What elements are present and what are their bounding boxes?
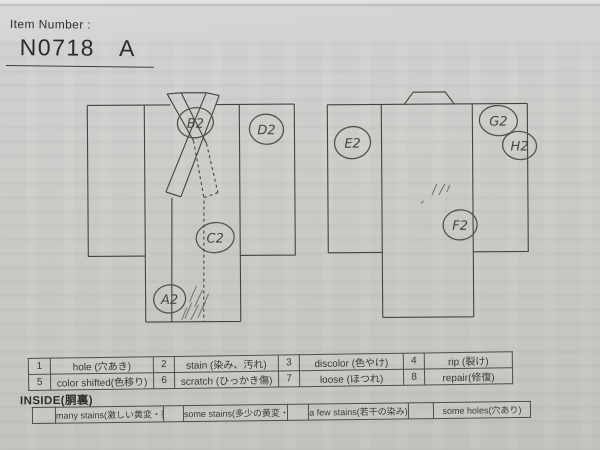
damage-label-d2: D2 (248, 112, 285, 146)
inside-check-4 (408, 403, 433, 419)
kimono-front-diagram: B2 D2 C2 A2 (87, 92, 296, 322)
inside-desc-some-holes: some holes(穴あり) (433, 401, 530, 418)
legend-desc-scratch: scratch (ひっかき傷) (174, 371, 278, 388)
inside-desc-many-stains: many stains(激しい黄変・染み) (55, 406, 163, 423)
legend-code-2: 2 (153, 356, 174, 372)
label-text: C2 (206, 232, 223, 247)
damage-legend: 1 hole (穴あき) 2 stain (染み、汚れ) 3 discolor … (28, 351, 513, 391)
legend-code-6: 6 (153, 372, 174, 388)
label-text: F2 (452, 219, 468, 234)
kimono-back-diagram: E2 G2 H2 F2 (327, 91, 539, 317)
legend-desc-discolor: discolor (色やけ) (299, 353, 403, 370)
back-collar (404, 92, 454, 104)
legend-code-8: 8 (403, 369, 424, 385)
legend-code-4: 4 (403, 353, 424, 369)
legend-code-7: 7 (278, 371, 299, 387)
inside-check-1 (32, 407, 55, 423)
label-text: H2 (510, 139, 528, 154)
legend-desc-hole: hole (穴あき) (50, 357, 153, 374)
label-text: E2 (344, 137, 361, 152)
inside-check-3 (287, 404, 308, 420)
legend-desc-repair: repair(修復) (424, 368, 512, 385)
legend-code-5: 5 (28, 374, 50, 390)
legend-desc-loose: loose (ほつれ) (299, 369, 403, 386)
label-text: B2 (187, 117, 204, 132)
damage-label-a2: A2 (151, 282, 188, 315)
inside-desc-a-few-stains: a few stains(若干の染み) (308, 403, 408, 420)
legend-desc-rip: rip (裂け) (424, 352, 512, 369)
label-text: D2 (257, 123, 275, 138)
damage-label-c2: C2 (195, 221, 236, 255)
back-stain-marks (421, 184, 450, 203)
legend-code-3: 3 (278, 355, 299, 371)
inside-desc-some-stains: some stains(多少の黄変・染み) (183, 404, 287, 421)
scanned-condition-sheet: Item Number : N0718A (0, 0, 600, 450)
damage-legend-table: 1 hole (穴あき) 2 stain (染み、汚れ) 3 discolor … (28, 351, 513, 391)
label-text: G2 (489, 115, 507, 130)
front-stain-hatching (182, 286, 209, 320)
inside-check-2 (163, 406, 183, 422)
legend-desc-stain: stain (染み、汚れ) (174, 355, 278, 372)
legend-code-1: 1 (28, 358, 50, 374)
damage-label-e2: E2 (332, 124, 372, 161)
legend-desc-color-shifted: color shifted(色移り) (50, 373, 153, 390)
label-text: A2 (160, 293, 178, 308)
